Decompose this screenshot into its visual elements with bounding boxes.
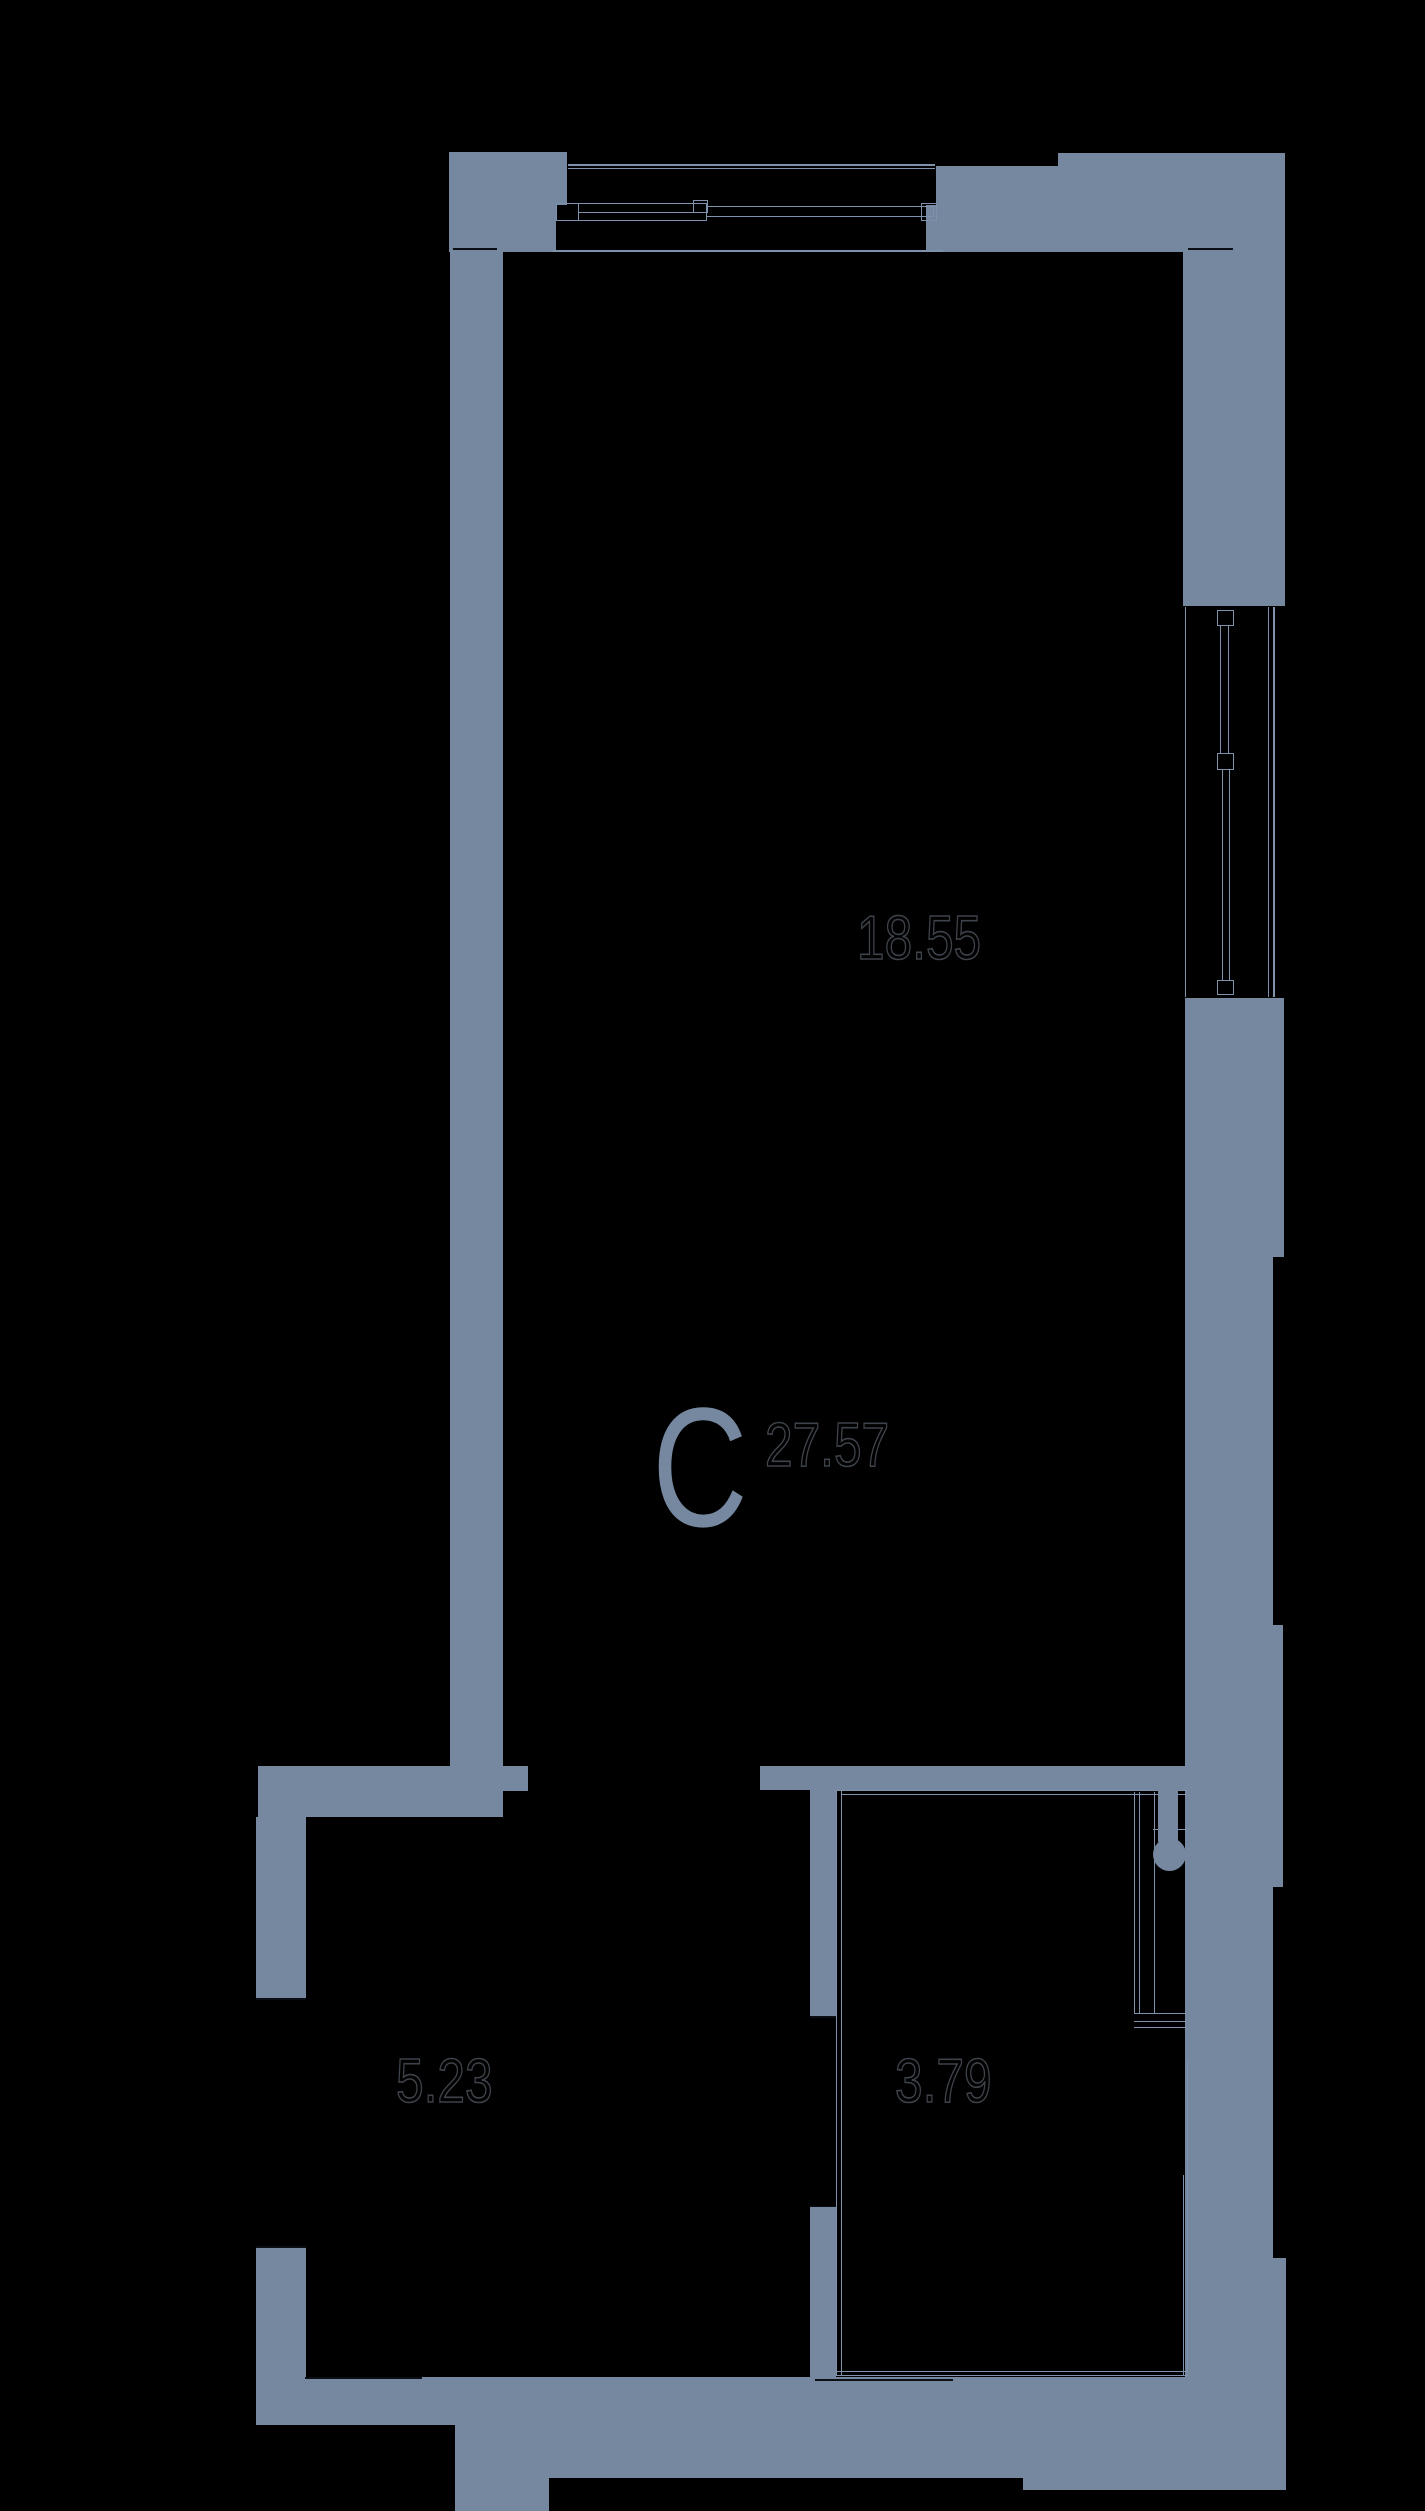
wall-right-jog-3 xyxy=(1273,2258,1286,2490)
top-window-sash-left-midline xyxy=(579,212,706,213)
duct-shaft-line-2 xyxy=(1139,1792,1140,2014)
wall-bottom-stub xyxy=(455,2478,549,2511)
top-window-outer-line-2 xyxy=(568,168,935,169)
duct-shaft-line-3 xyxy=(1154,1792,1155,2014)
wall-right-jog-2 xyxy=(1273,1625,1283,1887)
right-window-sash-lower xyxy=(1222,769,1230,981)
wall-bottom-right xyxy=(1023,2377,1273,2490)
bathroom-lining-bottom xyxy=(836,2371,1188,2372)
wall-joint-cap xyxy=(810,2016,836,2018)
top-window-left-cap xyxy=(556,203,579,221)
bathroom-lining-left-2 xyxy=(841,1790,842,2376)
duct-shaft-bottom-line xyxy=(1134,2013,1187,2014)
wall-joint-cap xyxy=(305,2377,422,2379)
top-window-sill-line xyxy=(553,250,943,252)
wall-joint-cap xyxy=(815,2379,953,2381)
wall-bottom-left xyxy=(305,2377,455,2425)
duct-shaft-line xyxy=(1134,1792,1135,2014)
wall-joint-cap xyxy=(1188,248,1233,250)
wall-bathroom-top xyxy=(760,1766,1185,1790)
bathroom-lining-right-2 xyxy=(1187,2060,1188,2375)
room-area-label-bathroom: 3.79 xyxy=(895,2051,992,2113)
wall-right-lower xyxy=(1185,998,1273,2490)
bathroom-lining-top-2 xyxy=(842,1794,1188,1795)
wall-hallway-top xyxy=(258,1766,503,1817)
room-area-label-main: 27.57 xyxy=(765,1415,889,1477)
bathroom-lining-top xyxy=(836,1790,1188,1791)
wall-left-hallway-upper xyxy=(256,1817,306,2000)
riser-pipe-circle xyxy=(1153,1838,1186,1871)
right-window-bottom-cap xyxy=(1217,980,1234,995)
right-window-sash-upper xyxy=(1220,625,1229,754)
bathroom-lining-left xyxy=(836,1790,837,2376)
bathroom-lining-right xyxy=(1183,2175,1184,2375)
section-letter: C xyxy=(652,1383,748,1553)
wall-right-upper xyxy=(1183,252,1285,606)
wall-top-right-band xyxy=(936,166,1285,252)
wall-joint-cap xyxy=(256,1998,306,2000)
right-window-top-cap xyxy=(1217,610,1234,626)
right-window-outer-line xyxy=(1268,607,1269,997)
wall-bottom-mid xyxy=(455,2377,1023,2478)
right-window-mullion xyxy=(1217,753,1234,770)
top-window-outer-line xyxy=(568,164,935,166)
riser-pipe-stem xyxy=(1158,1790,1178,1842)
right-window-inner-face-line xyxy=(1185,607,1186,997)
wall-divider-lower xyxy=(810,2207,836,2377)
room-area-label-hallway: 5.23 xyxy=(396,2051,493,2113)
wall-top-left-pier xyxy=(449,152,567,205)
wall-divider-upper xyxy=(810,1790,836,2018)
wall-top-right-upper xyxy=(1058,153,1285,167)
bathroom-lining-bottom-2 xyxy=(836,2375,1188,2376)
wall-left-hallway-lower xyxy=(256,2248,306,2425)
wall-left-main xyxy=(450,250,503,1768)
duct-shaft-bottom-line-2 xyxy=(1134,2021,1187,2022)
top-window-right-cap xyxy=(921,203,937,221)
room-area-label-upper: 18.55 xyxy=(857,908,981,970)
wall-right-jog-1 xyxy=(1273,998,1284,1257)
floor-plan: 18.55 C 27.57 5.23 3.79 xyxy=(0,0,1425,2511)
wall-top-left-pier-lower xyxy=(449,205,556,252)
duct-shaft-bottom-line-3 xyxy=(1134,2027,1187,2028)
wall-hallway-top-tab xyxy=(503,1766,528,1791)
top-window-sash-right xyxy=(706,206,934,217)
right-window-outer-line-2 xyxy=(1273,607,1275,997)
